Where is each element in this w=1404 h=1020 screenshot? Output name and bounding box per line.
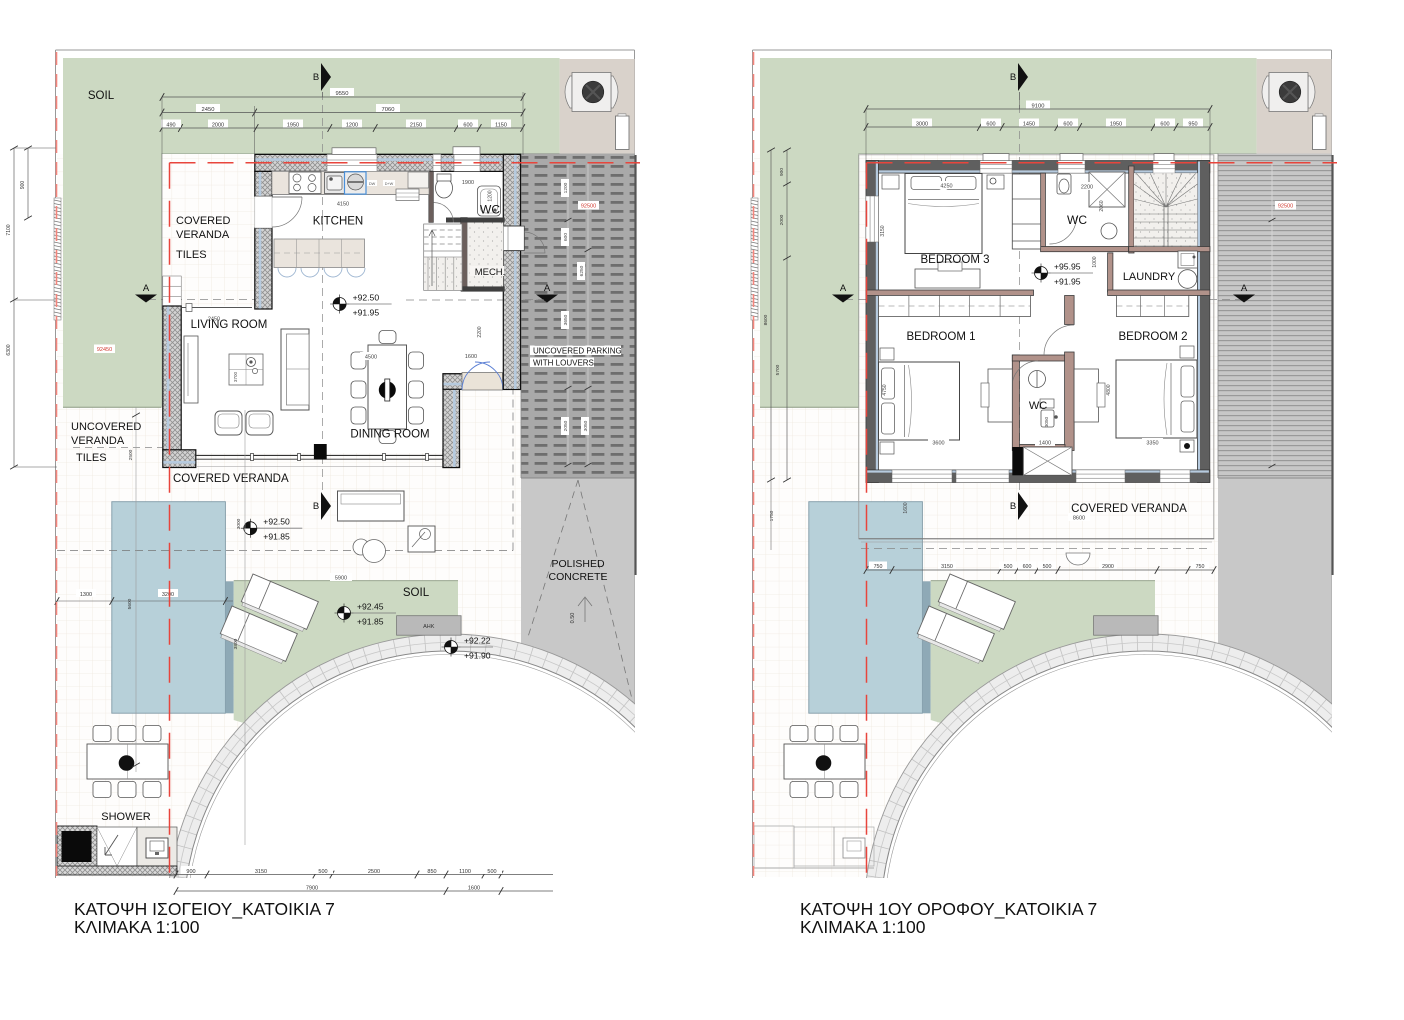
svg-text:2000: 2000 xyxy=(779,214,785,225)
svg-text:600: 600 xyxy=(1063,122,1072,128)
svg-text:2450: 2450 xyxy=(202,107,215,113)
svg-text:+91.95: +91.95 xyxy=(1054,277,1081,287)
svg-text:1000: 1000 xyxy=(1092,256,1098,267)
svg-text:2050: 2050 xyxy=(563,420,569,431)
svg-text:A: A xyxy=(143,283,150,294)
svg-text:1200: 1200 xyxy=(563,182,569,193)
svg-text:900: 900 xyxy=(779,168,785,176)
svg-text:+91.85: +91.85 xyxy=(357,617,384,627)
svg-text:7060: 7060 xyxy=(382,107,395,113)
svg-text:2060: 2060 xyxy=(1099,200,1105,211)
svg-text:4750: 4750 xyxy=(882,384,888,395)
svg-text:WC: WC xyxy=(480,203,500,217)
svg-text:VERANDA: VERANDA xyxy=(176,229,230,241)
svg-text:B: B xyxy=(1010,72,1016,83)
svg-text:TILES: TILES xyxy=(176,249,207,261)
svg-text:1600: 1600 xyxy=(468,886,480,892)
svg-text:2000: 2000 xyxy=(212,123,224,129)
svg-text:3050: 3050 xyxy=(583,420,589,431)
svg-text:1600: 1600 xyxy=(465,354,477,360)
svg-text:ΚΛΙΜΑΚΑ 1:100: ΚΛΙΜΑΚΑ 1:100 xyxy=(74,917,200,937)
svg-text:+95.95: +95.95 xyxy=(1054,262,1081,272)
svg-text:UNCOVERED PARKING: UNCOVERED PARKING xyxy=(533,347,622,356)
svg-text:600: 600 xyxy=(1160,122,1169,128)
svg-text:BEDROOM 1: BEDROOM 1 xyxy=(906,331,975,343)
svg-text:+92.22: +92.22 xyxy=(464,636,491,646)
svg-text:WC: WC xyxy=(1067,213,1087,227)
svg-text:3150: 3150 xyxy=(255,869,267,875)
svg-text:VERANDA: VERANDA xyxy=(71,435,125,447)
svg-text:3000: 3000 xyxy=(916,122,928,128)
svg-text:LAUNDRY: LAUNDRY xyxy=(1123,271,1176,283)
svg-text:COVERED: COVERED xyxy=(176,215,230,227)
svg-text:2500: 2500 xyxy=(368,869,380,875)
svg-text:3650: 3650 xyxy=(563,314,569,325)
svg-text:950: 950 xyxy=(1188,122,1197,128)
svg-text:1950: 1950 xyxy=(1110,122,1122,128)
svg-text:3150: 3150 xyxy=(880,225,886,236)
svg-text:5900: 5900 xyxy=(335,576,347,582)
svg-text:3150: 3150 xyxy=(941,564,953,570)
svg-text:500: 500 xyxy=(487,869,496,875)
svg-text:SHOWER: SHOWER xyxy=(101,811,151,823)
svg-text:3350: 3350 xyxy=(1146,441,1158,447)
svg-text:1950: 1950 xyxy=(287,123,299,129)
svg-text:A: A xyxy=(544,283,551,294)
svg-text:CONCRETE: CONCRETE xyxy=(549,571,608,583)
svg-text:UNCOVERED: UNCOVERED xyxy=(71,421,141,433)
svg-text:A: A xyxy=(840,283,847,294)
svg-text:MECH.: MECH. xyxy=(475,267,506,278)
svg-text:490: 490 xyxy=(166,123,175,129)
svg-text:A: A xyxy=(1241,283,1248,294)
svg-text:DW: DW xyxy=(369,182,376,186)
svg-text:9550: 9550 xyxy=(336,91,349,97)
svg-text:1100: 1100 xyxy=(459,869,471,875)
svg-text:4800: 4800 xyxy=(1106,384,1112,395)
svg-text:92500: 92500 xyxy=(581,204,596,210)
svg-text:TILES: TILES xyxy=(76,452,107,464)
svg-text:500: 500 xyxy=(1043,564,1052,570)
svg-text:SOIL: SOIL xyxy=(88,90,115,102)
svg-text:500: 500 xyxy=(1004,564,1013,570)
svg-text:4150: 4150 xyxy=(337,202,349,208)
svg-text:+91.95: +91.95 xyxy=(353,308,380,318)
svg-text:750: 750 xyxy=(874,564,883,570)
svg-text:1400: 1400 xyxy=(1039,441,1051,447)
svg-text:+92.50: +92.50 xyxy=(353,293,380,303)
svg-text:3700: 3700 xyxy=(233,371,238,382)
svg-text:6300: 6300 xyxy=(6,344,12,355)
svg-text:7100: 7100 xyxy=(6,224,12,235)
svg-text:4250: 4250 xyxy=(940,184,952,190)
svg-text:1750: 1750 xyxy=(769,510,775,521)
svg-text:1600: 1600 xyxy=(903,502,909,513)
svg-text:4500: 4500 xyxy=(365,355,377,361)
svg-text:2150: 2150 xyxy=(410,123,422,129)
svg-text:B: B xyxy=(1010,501,1016,512)
svg-text:3600: 3600 xyxy=(932,441,944,447)
svg-text:2200: 2200 xyxy=(1081,185,1093,191)
svg-text:3200: 3200 xyxy=(162,592,174,598)
svg-text:DINING ROOM: DINING ROOM xyxy=(350,429,429,441)
svg-text:COVERED VERANDA: COVERED VERANDA xyxy=(173,473,289,485)
svg-text:2500: 2500 xyxy=(128,449,134,460)
svg-text:900: 900 xyxy=(186,869,195,875)
svg-text:92500: 92500 xyxy=(1278,204,1293,210)
svg-text:+91.85: +91.85 xyxy=(263,532,290,542)
svg-text:850: 850 xyxy=(427,869,436,875)
svg-text:500: 500 xyxy=(318,869,327,875)
svg-text:1150: 1150 xyxy=(495,123,507,129)
svg-text:1900: 1900 xyxy=(462,180,474,186)
svg-text:5600: 5600 xyxy=(127,598,133,609)
svg-text:COVERED VERANDA: COVERED VERANDA xyxy=(1071,503,1187,515)
svg-text:5700: 5700 xyxy=(775,364,781,375)
svg-text:2200: 2200 xyxy=(477,326,483,337)
svg-text:600: 600 xyxy=(986,122,995,128)
svg-text:7900: 7900 xyxy=(306,886,318,892)
svg-text:1200: 1200 xyxy=(488,190,494,201)
svg-text:D+W: D+W xyxy=(385,182,394,186)
svg-text:900: 900 xyxy=(20,181,26,190)
svg-text:3000: 3000 xyxy=(236,518,242,529)
svg-text:600: 600 xyxy=(463,123,472,129)
svg-text:BEDROOM 3: BEDROOM 3 xyxy=(920,254,989,266)
svg-text:92450: 92450 xyxy=(97,347,112,353)
svg-text:BEDROOM 2: BEDROOM 2 xyxy=(1118,331,1187,343)
svg-text:9100: 9100 xyxy=(1032,104,1045,110)
svg-text:8600: 8600 xyxy=(1073,516,1085,522)
svg-text:1300: 1300 xyxy=(80,592,92,598)
svg-text:POLISHED: POLISHED xyxy=(551,558,605,570)
svg-text:6250: 6250 xyxy=(579,265,585,276)
svg-text:750: 750 xyxy=(1196,564,1205,570)
svg-text:3800: 3800 xyxy=(233,638,239,649)
svg-text:LIVING ROOM: LIVING ROOM xyxy=(191,319,268,331)
svg-text:1200: 1200 xyxy=(346,123,358,129)
svg-text:WITH LOUVERS: WITH LOUVERS xyxy=(533,359,594,368)
svg-text:WC: WC xyxy=(1029,400,1047,412)
svg-text:600: 600 xyxy=(563,233,569,241)
svg-text:KITCHEN: KITCHEN xyxy=(313,216,363,228)
svg-text:ΚΛΙΜΑΚΑ 1:100: ΚΛΙΜΑΚΑ 1:100 xyxy=(800,917,926,937)
svg-text:B: B xyxy=(313,72,319,83)
svg-text:2900: 2900 xyxy=(1102,564,1114,570)
svg-text:1450: 1450 xyxy=(1023,122,1035,128)
svg-text:+92.50: +92.50 xyxy=(263,517,290,527)
svg-text:AHK: AHK xyxy=(423,624,435,630)
svg-text:0.50: 0.50 xyxy=(570,613,576,624)
svg-text:SOIL: SOIL xyxy=(403,587,430,599)
svg-text:B: B xyxy=(313,501,319,512)
svg-text:+92.45: +92.45 xyxy=(357,602,384,612)
svg-text:600: 600 xyxy=(1023,564,1032,570)
svg-text:8600: 8600 xyxy=(763,314,769,325)
svg-text:+91.90: +91.90 xyxy=(464,651,491,661)
svg-text:3050: 3050 xyxy=(1044,416,1049,427)
